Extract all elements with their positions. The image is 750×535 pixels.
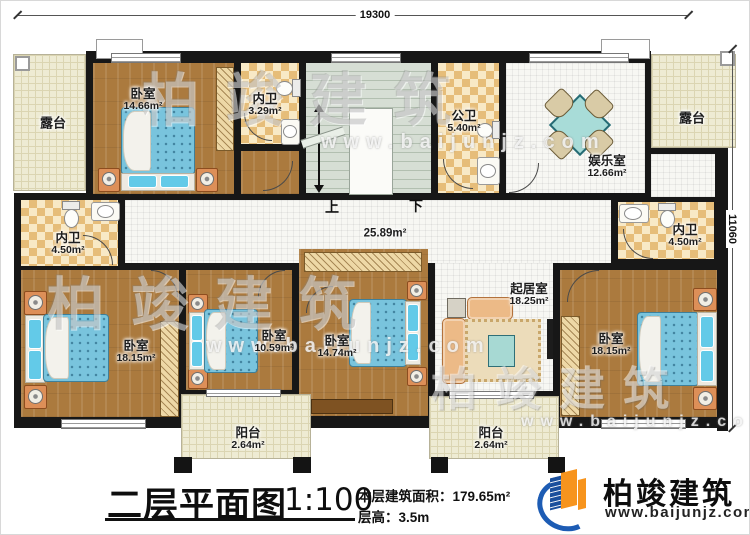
balcony-pillar xyxy=(293,457,311,473)
hall-area-label: 25.89m² xyxy=(364,228,407,241)
balcony-door xyxy=(206,389,281,397)
logo-website: www.baijunjz.com xyxy=(605,504,750,521)
lamp-icon xyxy=(191,297,204,310)
room-label-terrace-left: 露台 xyxy=(40,117,66,132)
window xyxy=(111,53,181,63)
window xyxy=(331,53,401,63)
dimension-right-value: 11060 xyxy=(726,210,738,248)
room-label-living: 起居室18.25m² xyxy=(509,282,548,308)
bed-sheet xyxy=(206,312,226,370)
balcony-door xyxy=(449,391,534,399)
dimension-line-top xyxy=(17,15,689,16)
balcony-pillar xyxy=(548,457,565,473)
pillow xyxy=(191,315,203,341)
room-label-bath-left: 内卫4.50m² xyxy=(51,231,84,257)
bed-sheet xyxy=(123,111,151,171)
sofa xyxy=(442,318,466,384)
sink-icon xyxy=(480,164,496,178)
floor-height-text: 层高：3.5m xyxy=(358,506,429,526)
lamp-icon xyxy=(410,284,423,297)
balcony-pillar xyxy=(431,457,448,473)
pillow xyxy=(28,319,42,349)
logo-building-icon xyxy=(578,478,586,510)
window xyxy=(529,53,629,63)
stairs-down-label: 下 xyxy=(409,196,423,216)
pillow xyxy=(700,316,714,348)
window xyxy=(601,419,686,429)
dresser xyxy=(311,399,393,414)
sink-icon xyxy=(97,205,114,218)
wardrobe xyxy=(160,321,179,417)
window xyxy=(61,419,146,429)
pillow xyxy=(128,175,157,188)
lamp-icon xyxy=(28,389,43,404)
pillow xyxy=(407,304,419,332)
stair-void xyxy=(349,108,393,195)
floor-plan-page: 19300 11060 xyxy=(0,0,750,535)
room-label-balcony-left: 阳台2.64m² xyxy=(231,426,264,452)
tv xyxy=(547,319,553,359)
pillow xyxy=(407,333,419,361)
sink-icon xyxy=(624,207,642,220)
room-label-bedroom-bottom-mid2: 卧室14.74m² xyxy=(317,334,356,360)
stairs-up-label: 上 xyxy=(325,197,339,217)
hallway-top-right-floor xyxy=(651,154,715,197)
sofa xyxy=(467,297,513,320)
toilet-tank-icon xyxy=(492,121,500,139)
pillow xyxy=(191,341,203,367)
stair-arrow-up xyxy=(314,104,324,112)
lamp-icon xyxy=(102,172,116,186)
room-label-bath-right: 内卫4.50m² xyxy=(668,223,701,249)
room-label-bath-public: 公卫5.40m² xyxy=(447,109,480,135)
balcony-pillar xyxy=(174,457,192,473)
terrace-right-floor xyxy=(651,54,736,148)
sink-icon xyxy=(283,125,297,138)
room-label-bath-top: 内卫3.29m² xyxy=(248,92,281,118)
toilet-tank-icon xyxy=(292,79,301,97)
pillow xyxy=(700,350,714,382)
room-label-bedroom-bottom-mid1: 卧室10.59m² xyxy=(254,329,293,355)
logo-building-icon xyxy=(561,469,577,509)
side-cabinet xyxy=(447,298,466,318)
room-label-bedroom-top-left: 卧室14.66m² xyxy=(123,87,162,113)
dimension-top-value: 19300 xyxy=(356,9,395,21)
stair-direction-line xyxy=(318,111,320,186)
logo-building-icon xyxy=(550,476,561,511)
title-underline xyxy=(105,518,355,521)
room-label-terrace-right: 露台 xyxy=(679,112,705,127)
room-label-bedroom-bottom-right: 卧室18.15m² xyxy=(591,332,630,358)
lamp-icon xyxy=(410,370,423,383)
wardrobe xyxy=(561,316,580,416)
room-label-entertainment: 娱乐室12.66m² xyxy=(587,154,626,180)
bed-sheet xyxy=(45,317,69,379)
lamp-icon xyxy=(200,172,214,186)
lamp-icon xyxy=(698,391,713,406)
corner-column xyxy=(15,56,30,71)
room-label-bedroom-bottom-left: 卧室18.15m² xyxy=(116,339,155,365)
wall-segment xyxy=(717,141,728,431)
pillow xyxy=(160,175,189,188)
floor-area-text: 本层建筑面积：179.65m² xyxy=(358,485,510,505)
lamp-icon xyxy=(698,292,713,307)
toilet-icon xyxy=(64,209,79,228)
coffee-table xyxy=(488,335,515,367)
lamp-icon xyxy=(191,372,204,385)
wardrobe xyxy=(304,252,422,272)
room-label-balcony-right: 阳台2.64m² xyxy=(474,426,507,452)
stair-arrow-down xyxy=(314,185,324,193)
pillow xyxy=(28,350,42,380)
bed-sheet xyxy=(639,316,661,382)
wardrobe xyxy=(216,67,234,151)
lamp-icon xyxy=(28,295,43,310)
